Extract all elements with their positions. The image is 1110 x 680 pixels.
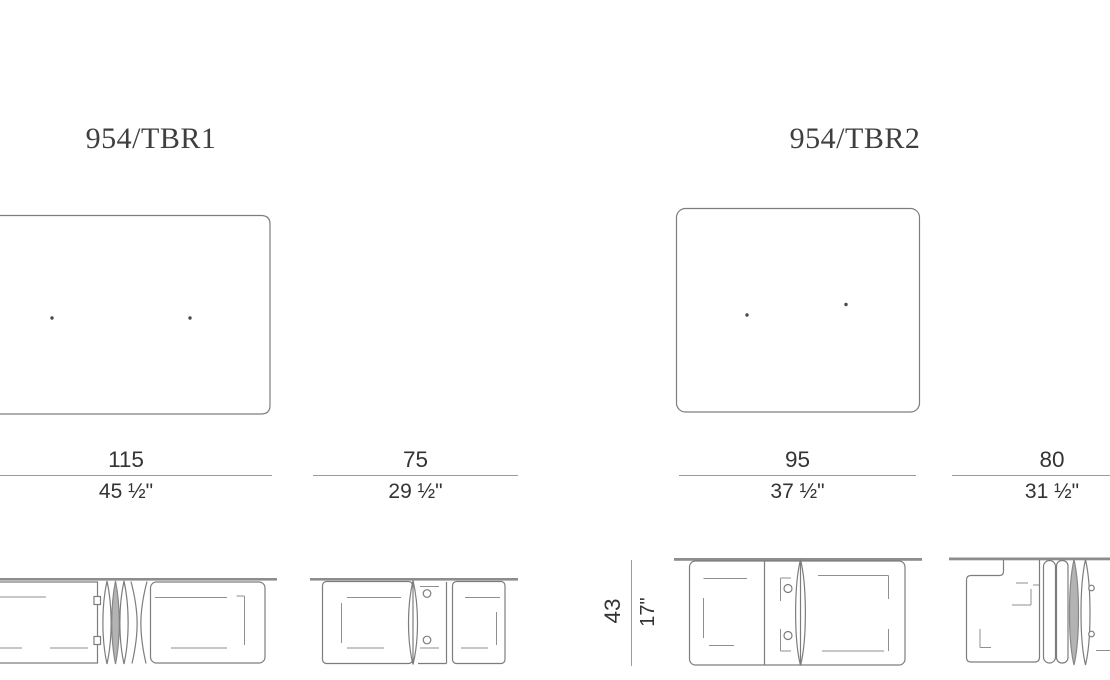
dimension-width-tbr1-cm: 115 xyxy=(0,445,272,475)
dimension-depth-tbr1-cm: 75 xyxy=(313,445,518,475)
dimension-width-tbr2-cm: 95 xyxy=(679,445,916,475)
model-title-tbr1: 954/TBR1 xyxy=(1,121,301,157)
catalog-dimension-page: 954/TBR1 954/TBR2 115 45 ½" 75 29 ½" 95 … xyxy=(0,0,1110,680)
front-elevation-tbr1 xyxy=(0,578,277,664)
dimension-height-tbr2-cm: 43 xyxy=(598,581,628,641)
dimension-width-tbr2-inch: 37 ½" xyxy=(679,476,916,507)
dimension-height-line xyxy=(631,560,632,666)
top-view-tbr2 xyxy=(677,209,920,413)
side-elevation-tbr1 xyxy=(310,578,518,665)
front-elevation-tbr2 xyxy=(674,558,922,666)
dimension-height-tbr2-inch: 17" xyxy=(634,582,662,642)
dimension-depth-tbr2: 80 31 ½" xyxy=(952,445,1110,507)
dimension-width-tbr1-inch: 45 ½" xyxy=(0,476,272,507)
dimension-depth-tbr2-inch: 31 ½" xyxy=(952,476,1110,507)
dimension-width-tbr1: 115 45 ½" xyxy=(0,445,272,507)
dimension-depth-tbr2-cm: 80 xyxy=(952,445,1110,475)
technical-drawing-layer xyxy=(0,0,1110,680)
dimension-depth-tbr1-inch: 29 ½" xyxy=(313,476,518,507)
side-elevation-tbr2 xyxy=(949,558,1110,666)
model-title-tbr2: 954/TBR2 xyxy=(705,121,1005,157)
dimension-width-tbr2: 95 37 ½" xyxy=(679,445,916,507)
dimension-depth-tbr1: 75 29 ½" xyxy=(313,445,518,507)
top-view-tbr1 xyxy=(0,216,270,415)
